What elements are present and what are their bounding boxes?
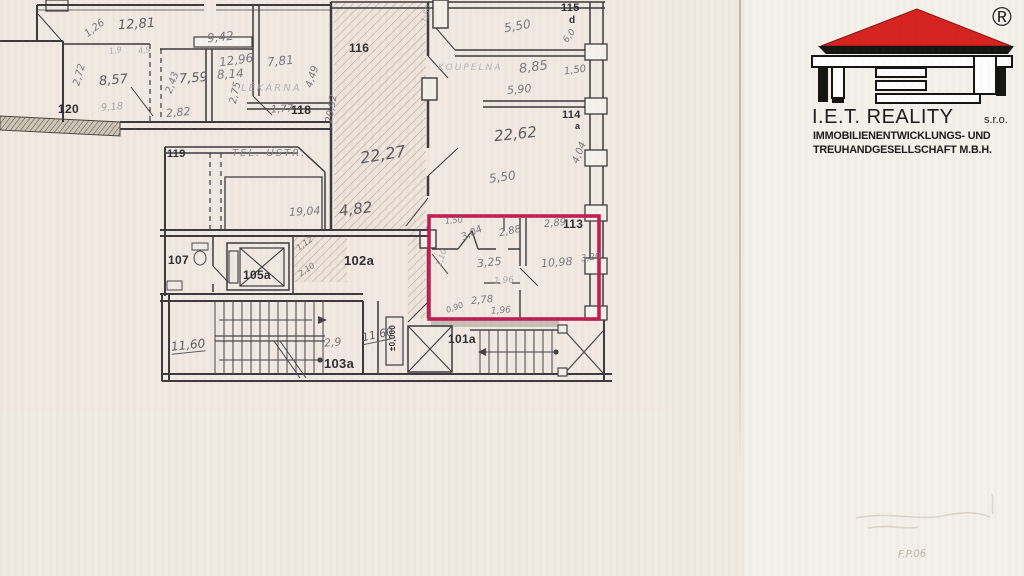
elevator-105a (227, 243, 289, 290)
logo-subtitle-line2: TREUHANDGESELLSCHAFT M.B.H. (813, 144, 992, 156)
wc-fixtures-107 (167, 243, 208, 290)
logo-company-suffix: s.r.o. (984, 114, 1008, 126)
staircase-101a (470, 325, 603, 376)
pencil-smudges (856, 494, 993, 528)
faint-page-stamp: F.P.06 (898, 549, 927, 561)
company-logo: ® I.E.T. REALITY s.r.o. IMMOBILIENENTWIC… (806, 4, 1022, 168)
logo-company-name: I.E.T. REALITY (812, 106, 953, 129)
staircase-103a (215, 301, 327, 378)
logo-roof-icon (821, 9, 1011, 46)
logo-eave (818, 46, 1014, 54)
registered-trademark-icon: ® (992, 2, 1012, 33)
logo-graphic (806, 4, 1022, 106)
logo-subtitle-line1: IMMOBILIENENTWICKLUNGS- UND (813, 130, 991, 142)
highlight-room-113 (429, 216, 599, 319)
logo-letters-iet (812, 56, 1012, 103)
scanned-floor-plan-page: 120118119116115d114a113107105a102a103a10… (0, 0, 1024, 576)
